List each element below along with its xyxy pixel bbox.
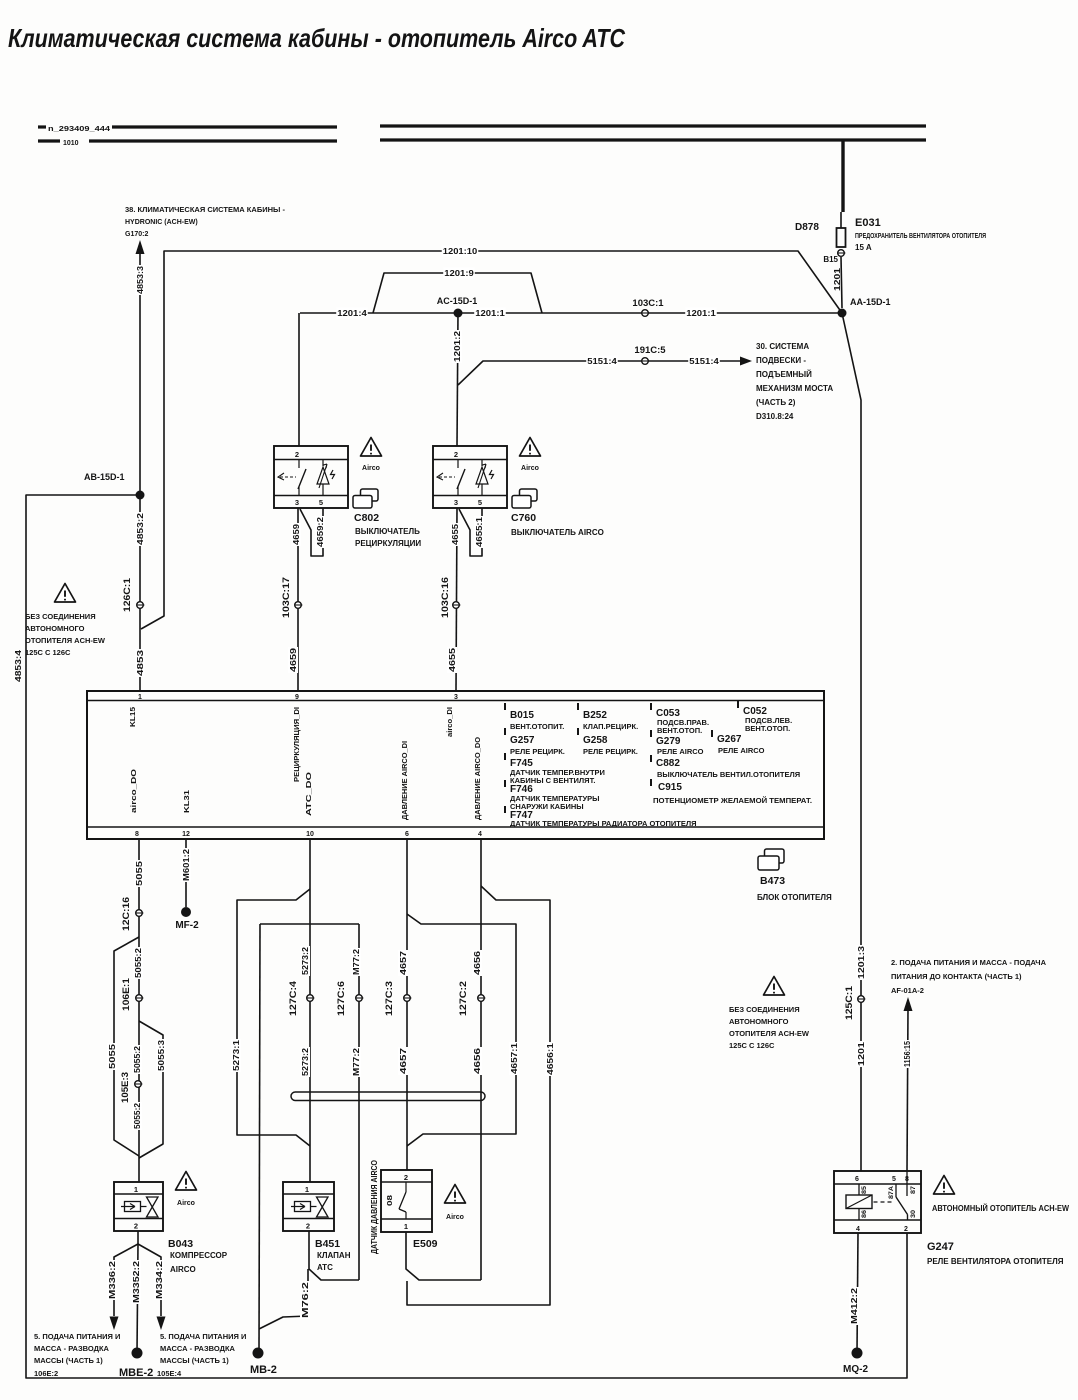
svg-text:РЕЛЕ ВЕНТИЛЯТОРА ОТОПИТЕЛЯ: РЕЛЕ ВЕНТИЛЯТОРА ОТОПИТЕЛЯ <box>927 1257 1064 1266</box>
svg-text:G258: G258 <box>583 735 608 746</box>
svg-text:106Е:2: 106Е:2 <box>34 1369 58 1378</box>
svg-text:15 A: 15 A <box>855 243 872 252</box>
svg-text:D310.8:24: D310.8:24 <box>756 412 794 421</box>
svg-text:E509: E509 <box>413 1238 438 1250</box>
svg-text:M77:2: M77:2 <box>351 949 361 975</box>
svg-text:85: 85 <box>861 1186 868 1194</box>
svg-text:4656: 4656 <box>472 1048 482 1074</box>
svg-text:Airco: Airco <box>446 1214 464 1221</box>
svg-text:1201: 1201 <box>832 268 842 291</box>
svg-text:10: 10 <box>306 831 314 838</box>
svg-text:5055:2: 5055:2 <box>133 948 143 978</box>
svg-text:125C C 126C: 125C C 126C <box>729 1041 775 1050</box>
svg-text:C915: C915 <box>658 782 682 793</box>
svg-text:5273:2: 5273:2 <box>300 1048 310 1076</box>
svg-text:2: 2 <box>404 1173 408 1182</box>
svg-text:1201:3: 1201:3 <box>856 946 866 979</box>
svg-text:G267: G267 <box>717 734 742 745</box>
svg-text:30: 30 <box>910 1210 917 1218</box>
svg-text:MF-2: MF-2 <box>175 920 199 931</box>
svg-text:РЕЦИРКУЛЯЦИЯ_DI: РЕЦИРКУЛЯЦИЯ_DI <box>292 707 301 782</box>
svg-text:ДАТЧИК ДАВЛЕНИЯ AIRCO: ДАТЧИК ДАВЛЕНИЯ AIRCO <box>370 1160 379 1254</box>
svg-text:airco_DI: airco_DI <box>445 707 454 737</box>
svg-text:B451: B451 <box>315 1238 340 1250</box>
svg-text:105E:3: 105E:3 <box>120 1072 131 1103</box>
svg-text:1: 1 <box>138 694 142 701</box>
svg-text:1201:4: 1201:4 <box>337 308 367 318</box>
svg-text:ПОДЪЕМНЫЙ: ПОДЪЕМНЫЙ <box>756 370 812 379</box>
svg-text:B043: B043 <box>168 1238 193 1250</box>
svg-text:C882: C882 <box>656 758 680 769</box>
svg-text:5. ПОДАЧА ПИТАНИЯ И: 5. ПОДАЧА ПИТАНИЯ И <box>34 1332 120 1341</box>
svg-text:9: 9 <box>295 694 299 701</box>
svg-text:1: 1 <box>305 1185 309 1194</box>
svg-text:ATC: ATC <box>317 1263 333 1272</box>
svg-text:4659: 4659 <box>291 524 301 545</box>
svg-text:M601:2: M601:2 <box>181 849 191 881</box>
svg-text:1201:1: 1201:1 <box>686 308 716 318</box>
svg-text:12C:16: 12C:16 <box>121 897 132 931</box>
svg-text:ВЕНТ.ОТОПИТ.: ВЕНТ.ОТОПИТ. <box>510 722 564 731</box>
svg-text:ATC_DO: ATC_DO <box>304 772 313 816</box>
svg-text:G257: G257 <box>510 735 535 746</box>
svg-text:РЕЛЕ AIRCO: РЕЛЕ AIRCO <box>718 746 765 755</box>
svg-text:КЛАПАН: КЛАПАН <box>317 1251 351 1260</box>
svg-text:87: 87 <box>910 1186 917 1194</box>
svg-text:КОМПРЕССОР: КОМПРЕССОР <box>170 1251 228 1260</box>
svg-text:ОТОПИТЕЛЯ ACH-EW: ОТОПИТЕЛЯ ACH-EW <box>729 1029 810 1038</box>
svg-text:KL15: KL15 <box>128 707 137 727</box>
svg-text:МАССЫ (ЧАСТЬ 1): МАССЫ (ЧАСТЬ 1) <box>160 1356 229 1365</box>
svg-text:AB-15D-1: AB-15D-1 <box>84 472 125 482</box>
svg-text:3: 3 <box>295 498 299 507</box>
svg-text:2: 2 <box>306 1222 310 1231</box>
svg-text:M76:2: M76:2 <box>300 1282 310 1318</box>
svg-text:5055:2: 5055:2 <box>132 1046 142 1073</box>
svg-text:АВТОНОМНОГО: АВТОНОМНОГО <box>25 624 85 633</box>
svg-text:4853:2: 4853:2 <box>135 513 145 545</box>
svg-text:103C:17: 103C:17 <box>281 577 292 618</box>
svg-text:C760: C760 <box>511 512 536 524</box>
svg-text:MQ-2: MQ-2 <box>843 1364 868 1375</box>
svg-text:2: 2 <box>295 450 299 459</box>
svg-text:5055:2: 5055:2 <box>132 1103 142 1129</box>
svg-text:ДАТЧИК ТЕМПЕРАТУРЫ РАДИАТОРА О: ДАТЧИК ТЕМПЕРАТУРЫ РАДИАТОРА ОТОПИТЕЛЯ <box>510 819 697 828</box>
svg-text:6: 6 <box>855 1176 859 1183</box>
svg-text:АВТОНОМНЫЙ ОТОПИТЕЛЬ ACH-EW: АВТОНОМНЫЙ ОТОПИТЕЛЬ ACH-EW <box>932 1204 1069 1213</box>
svg-text:38. КЛИМАТИЧЕСКАЯ СИСТЕМА КАБИ: 38. КЛИМАТИЧЕСКАЯ СИСТЕМА КАБИНЫ - <box>125 207 286 214</box>
svg-text:G279: G279 <box>656 736 681 747</box>
svg-text:AA-15D-1: AA-15D-1 <box>850 297 891 307</box>
svg-text:РЕЛЕ AIRCO: РЕЛЕ AIRCO <box>657 747 704 756</box>
svg-text:KL31: KL31 <box>182 790 191 813</box>
svg-text:HYDRONIC (ACH-EW): HYDRONIC (ACH-EW) <box>125 219 198 226</box>
svg-text:M77:2: M77:2 <box>351 1048 361 1076</box>
svg-text:ВЫКЛЮЧАТЕЛЬ: ВЫКЛЮЧАТЕЛЬ <box>355 527 420 536</box>
svg-text:105E:4: 105E:4 <box>157 1369 182 1378</box>
svg-text:1201: 1201 <box>856 1042 866 1066</box>
svg-text:ПОДВЕСКИ -: ПОДВЕСКИ - <box>756 356 806 365</box>
svg-text:E031: E031 <box>855 217 881 229</box>
svg-text:125C C 126C: 125C C 126C <box>25 648 71 657</box>
svg-text:103C:1: 103C:1 <box>632 298 664 309</box>
svg-text:3: 3 <box>454 694 458 701</box>
svg-text:РЕЛЕ РЕЦИРК.: РЕЛЕ РЕЦИРК. <box>583 747 638 756</box>
svg-text:103C:16: 103C:16 <box>440 577 451 618</box>
svg-text:МЕХАНИЗМ МОСТА: МЕХАНИЗМ МОСТА <box>756 384 833 393</box>
svg-text:B473: B473 <box>760 875 785 887</box>
svg-text:4656: 4656 <box>472 951 482 975</box>
svg-text:1156:15: 1156:15 <box>902 1041 912 1067</box>
svg-text:4: 4 <box>478 831 482 838</box>
svg-text:4: 4 <box>856 1226 860 1233</box>
svg-text:1201:9: 1201:9 <box>444 268 474 278</box>
svg-text:08: 08 <box>387 1195 394 1206</box>
svg-text:6: 6 <box>405 831 409 838</box>
svg-text:РЕЦИРКУЛЯЦИИ: РЕЦИРКУЛЯЦИИ <box>355 539 421 548</box>
svg-text:4853: 4853 <box>135 650 145 676</box>
svg-text:ВЕНТ.ОТОП.: ВЕНТ.ОТОП. <box>745 724 790 733</box>
svg-text:1201:10: 1201:10 <box>443 246 478 256</box>
svg-text:5273:1: 5273:1 <box>231 1040 241 1071</box>
svg-text:4659:2: 4659:2 <box>315 517 325 547</box>
svg-text:4655:1: 4655:1 <box>474 517 484 547</box>
svg-text:АВТОНОМНОГО: АВТОНОМНОГО <box>729 1017 789 1026</box>
svg-text:M334:2: M334:2 <box>154 1261 164 1299</box>
svg-text:Климатическая система кабины -: Климатическая система кабины - отопитель… <box>8 23 626 53</box>
svg-text:n_293409_444: n_293409_444 <box>48 126 110 133</box>
svg-text:РЕЛЕ РЕЦИРК.: РЕЛЕ РЕЦИРК. <box>510 747 565 756</box>
svg-text:МАССЫ (ЧАСТЬ 1): МАССЫ (ЧАСТЬ 1) <box>34 1356 103 1365</box>
svg-text:4657:1: 4657:1 <box>509 1043 519 1074</box>
svg-text:5: 5 <box>319 498 323 507</box>
svg-text:ПИТАНИЯ ДО КОНТАКТА (ЧАСТЬ 1): ПИТАНИЯ ДО КОНТАКТА (ЧАСТЬ 1) <box>891 972 1022 981</box>
svg-text:5055: 5055 <box>107 1044 117 1069</box>
svg-text:127C:6: 127C:6 <box>336 981 347 1016</box>
svg-text:2. ПОДАЧА ПИТАНИЯ И МАССА - ПО: 2. ПОДАЧА ПИТАНИЯ И МАССА - ПОДАЧА <box>891 958 1047 967</box>
svg-text:МАССА - РАЗВОДКА: МАССА - РАЗВОДКА <box>34 1344 110 1353</box>
svg-text:191C:5: 191C:5 <box>634 345 666 356</box>
svg-text:1201:1: 1201:1 <box>475 308 505 318</box>
svg-text:M336:2: M336:2 <box>107 1261 117 1299</box>
svg-text:ДАВЛЕНИЕ AIRCO_DO: ДАВЛЕНИЕ AIRCO_DO <box>473 737 482 820</box>
svg-text:B015: B015 <box>510 710 534 721</box>
svg-text:5. ПОДАЧА ПИТАНИЯ И: 5. ПОДАЧА ПИТАНИЯ И <box>160 1332 246 1341</box>
svg-text:5055:3: 5055:3 <box>156 1040 166 1071</box>
svg-text:4657: 4657 <box>398 951 408 975</box>
svg-text:ПРЕДОХРАНИТЕЛЬ ВЕНТИЛЯТОРА ОТО: ПРЕДОХРАНИТЕЛЬ ВЕНТИЛЯТОРА ОТОПИТЕЛЯ <box>855 233 986 240</box>
svg-text:4656:1: 4656:1 <box>545 1043 555 1075</box>
svg-text:4853:4: 4853:4 <box>13 650 23 682</box>
svg-text:D878: D878 <box>795 222 819 233</box>
svg-text:AF-01A-2: AF-01A-2 <box>891 986 924 995</box>
svg-text:МВ-2: МВ-2 <box>250 1364 277 1376</box>
svg-text:M412:2: M412:2 <box>849 1288 859 1324</box>
svg-text:airco_DO: airco_DO <box>129 769 138 813</box>
svg-text:2: 2 <box>904 1226 908 1233</box>
svg-text:ДАВЛЕНИЕ AIRCO_DI: ДАВЛЕНИЕ AIRCO_DI <box>400 741 409 820</box>
svg-text:C802: C802 <box>354 512 379 524</box>
svg-text:Airco: Airco <box>521 465 539 472</box>
svg-text:ОТОПИТЕЛЯ ACH-EW: ОТОПИТЕЛЯ ACH-EW <box>25 636 106 645</box>
svg-text:127C:2: 127C:2 <box>458 981 469 1016</box>
svg-text:1201:2: 1201:2 <box>452 331 462 362</box>
svg-text:125C:1: 125C:1 <box>844 985 855 1020</box>
svg-text:G247: G247 <box>927 1241 954 1253</box>
svg-text:4655: 4655 <box>450 524 460 545</box>
svg-text:MBE-2: MBE-2 <box>119 1367 153 1379</box>
svg-text:ВЫКЛЮЧАТЕЛЬ AIRCO: ВЫКЛЮЧАТЕЛЬ AIRCO <box>511 528 604 537</box>
svg-text:B252: B252 <box>583 710 607 721</box>
svg-text:5: 5 <box>892 1176 896 1183</box>
svg-text:87A: 87A <box>888 1186 895 1199</box>
svg-text:126C:1: 126C:1 <box>122 577 133 612</box>
svg-text:2: 2 <box>134 1222 138 1231</box>
svg-text:86: 86 <box>861 1210 868 1218</box>
svg-text:1: 1 <box>134 1185 138 1194</box>
svg-text:5273:2: 5273:2 <box>300 947 310 975</box>
svg-text:5: 5 <box>478 498 482 507</box>
svg-text:БЕЗ СОЕДИНЕНИЯ: БЕЗ СОЕДИНЕНИЯ <box>25 612 96 621</box>
svg-text:5151:4: 5151:4 <box>587 356 617 366</box>
svg-text:8: 8 <box>135 831 139 838</box>
svg-text:AC-15D-1: AC-15D-1 <box>437 296 478 306</box>
svg-text:5151:4: 5151:4 <box>689 356 719 366</box>
svg-text:ВЫКЛЮЧАТЕЛЬ ВЕНТИЛ.ОТОПИТЕЛЯ: ВЫКЛЮЧАТЕЛЬ ВЕНТИЛ.ОТОПИТЕЛЯ <box>657 770 800 779</box>
svg-text:2: 2 <box>454 450 458 459</box>
svg-text:Airco: Airco <box>177 1200 195 1207</box>
svg-text:Airco: Airco <box>362 465 380 472</box>
svg-text:КЛАП.РЕЦИРК.: КЛАП.РЕЦИРК. <box>583 722 638 731</box>
svg-text:4655: 4655 <box>447 648 457 672</box>
svg-text:(ЧАСТЬ 2): (ЧАСТЬ 2) <box>756 398 796 407</box>
svg-text:127C:3: 127C:3 <box>384 981 395 1016</box>
svg-text:1010: 1010 <box>63 140 79 147</box>
svg-text:5055: 5055 <box>134 861 144 886</box>
svg-text:1: 1 <box>404 1222 408 1231</box>
svg-text:4853:3: 4853:3 <box>135 266 145 294</box>
svg-text:12: 12 <box>182 831 190 838</box>
svg-text:B15: B15 <box>823 255 838 264</box>
svg-text:4657: 4657 <box>398 1048 408 1074</box>
svg-text:3: 3 <box>454 498 458 507</box>
svg-text:4659: 4659 <box>288 648 298 672</box>
svg-text:ПОТЕНЦИОМЕТР ЖЕЛАЕМОЙ ТЕМПЕРАТ: ПОТЕНЦИОМЕТР ЖЕЛАЕМОЙ ТЕМПЕРАТ. <box>653 796 812 805</box>
svg-text:AIRCO: AIRCO <box>170 1265 196 1274</box>
svg-text:БЛОК ОТОПИТЕЛЯ: БЛОК ОТОПИТЕЛЯ <box>757 893 832 902</box>
svg-text:БЕЗ СОЕДИНЕНИЯ: БЕЗ СОЕДИНЕНИЯ <box>729 1005 800 1014</box>
svg-text:ВЕНТ.ОТОП.: ВЕНТ.ОТОП. <box>657 726 702 735</box>
svg-text:127C:4: 127C:4 <box>288 980 299 1016</box>
svg-text:МАССА - РАЗВОДКА: МАССА - РАЗВОДКА <box>160 1344 236 1353</box>
svg-text:M3352:2: M3352:2 <box>131 1261 141 1303</box>
svg-text:30. СИСТЕМА: 30. СИСТЕМА <box>756 342 809 351</box>
svg-text:106E:1: 106E:1 <box>121 977 132 1011</box>
svg-text:G170:2: G170:2 <box>125 231 148 238</box>
